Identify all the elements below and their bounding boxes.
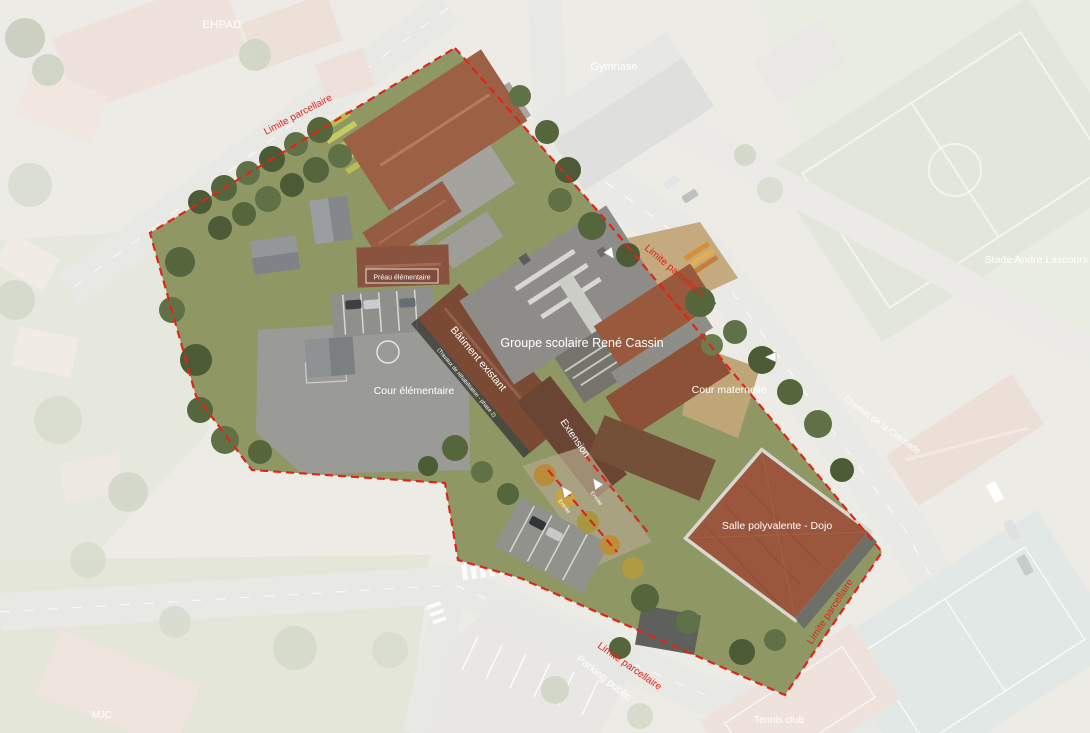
label-cour-elementaire: Cour élémentaire xyxy=(374,385,455,397)
site-plan-image: EHPAD Gymnase Stade André Lascours Chemi… xyxy=(0,0,1090,733)
label-preau-elementaire: Préau élémentaire xyxy=(373,275,430,282)
label-groupe-scolaire: Groupe scolaire René Cassin xyxy=(500,336,663,350)
site-plan-svg: EHPAD Gymnase Stade André Lascours Chemi… xyxy=(0,0,1090,733)
label-tennis-club: Tennis club xyxy=(754,715,804,726)
label-mjc: MJC xyxy=(92,710,113,721)
label-salle-polyvalente: Salle polyvalente - Dojo xyxy=(722,520,832,532)
label-stade: Stade André Lascours xyxy=(985,254,1088,266)
label-gymnase: Gymnase xyxy=(590,61,637,73)
label-cour-maternelle: Cour maternelle xyxy=(692,384,767,396)
label-ehpad: EHPAD xyxy=(202,19,242,31)
